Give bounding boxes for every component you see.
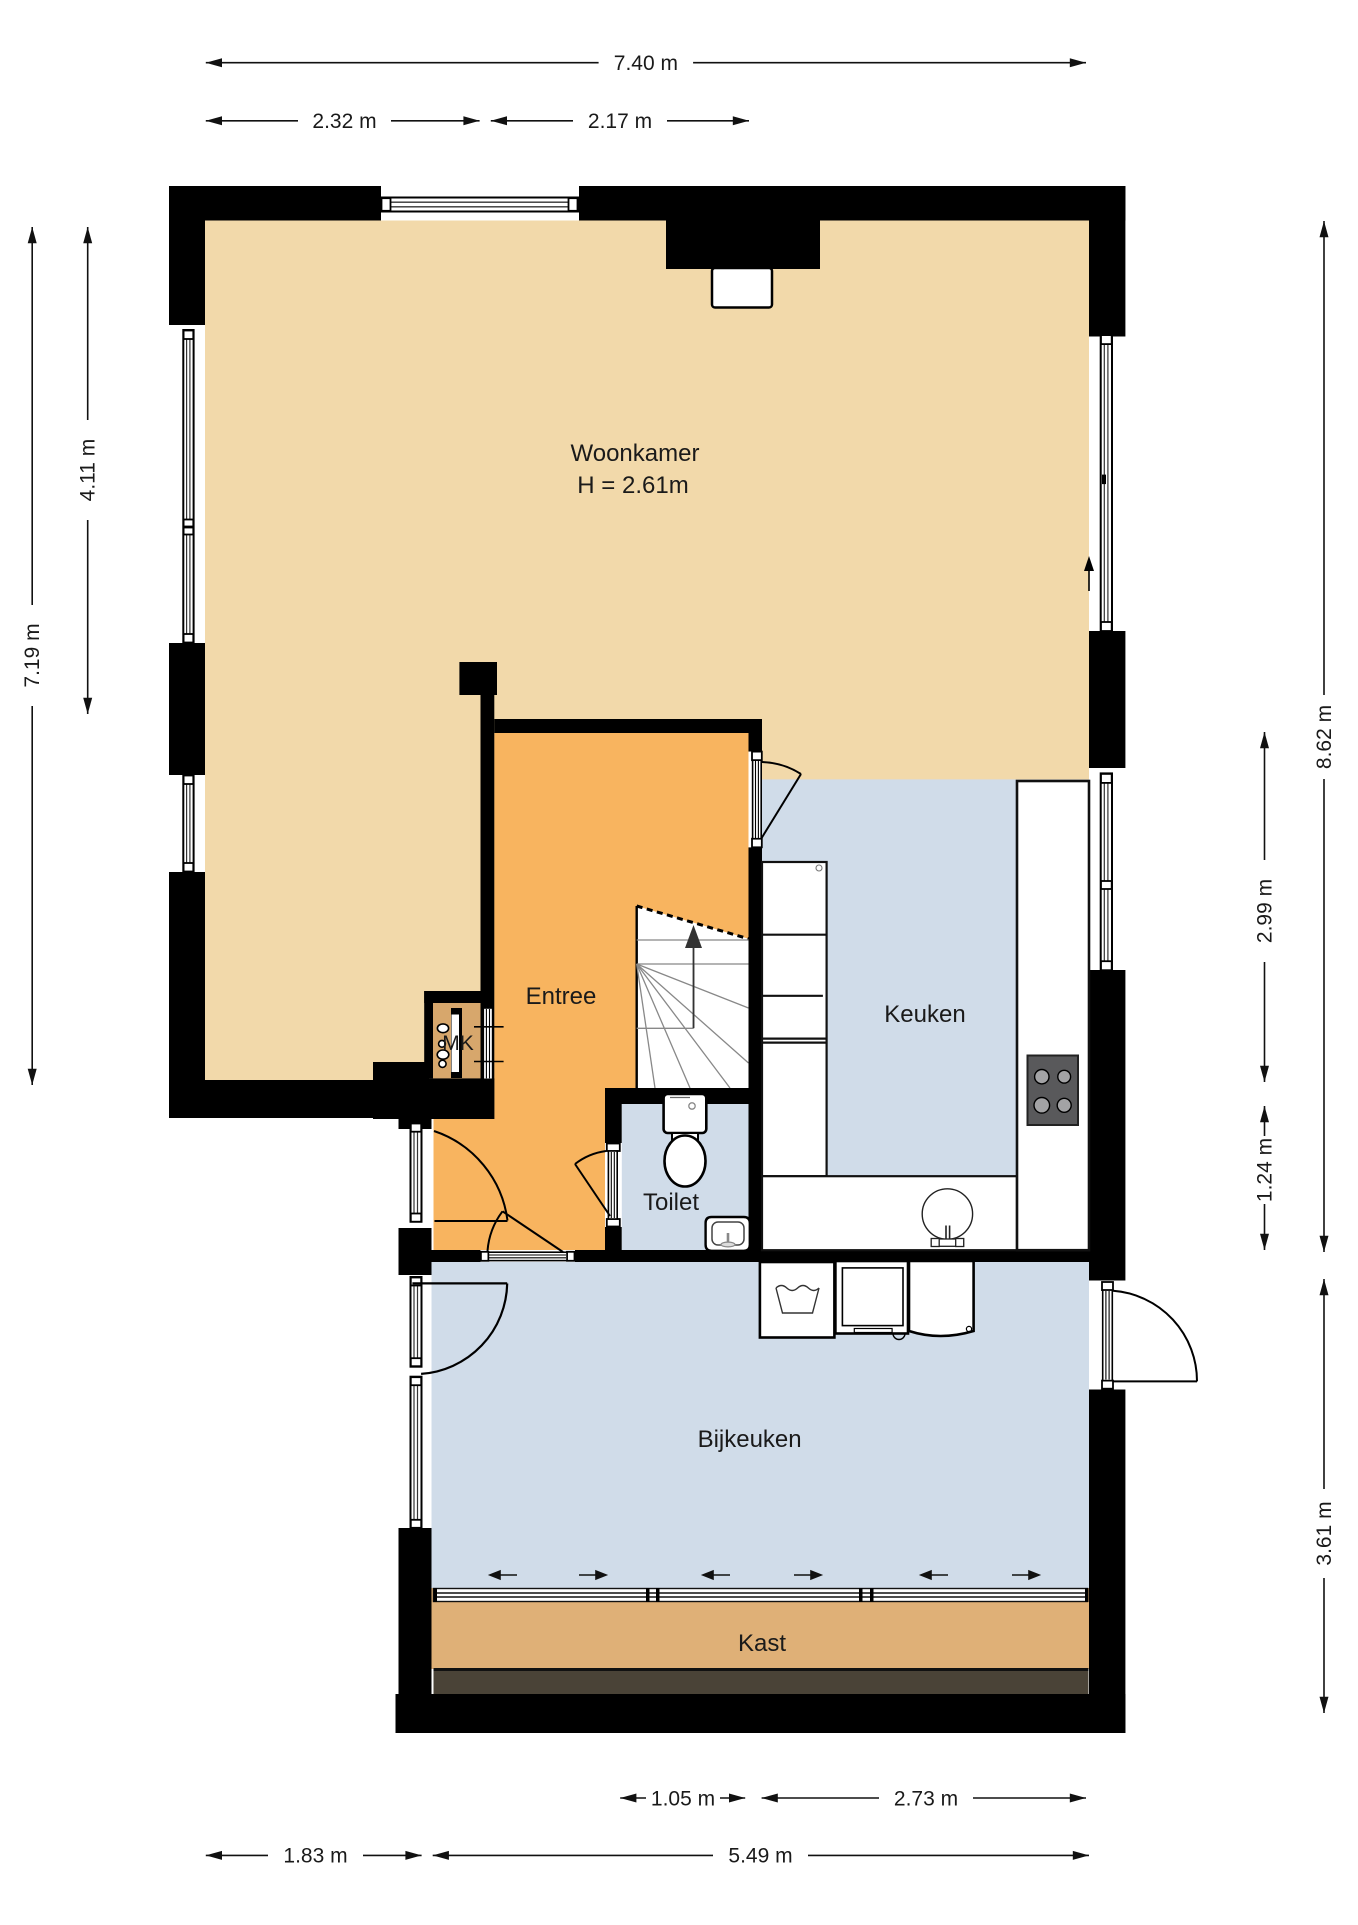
svg-text:1.24 m: 1.24 m <box>1254 1138 1277 1202</box>
svg-text:7.40 m: 7.40 m <box>614 52 678 75</box>
svg-text:2.17 m: 2.17 m <box>588 110 652 133</box>
svg-text:2.99 m: 2.99 m <box>1254 879 1277 943</box>
svg-text:Woonkamer: Woonkamer <box>571 440 700 467</box>
svg-text:4.11 m: 4.11 m <box>77 439 100 502</box>
svg-text:2.32 m: 2.32 m <box>312 110 376 133</box>
svg-text:2.73 m: 2.73 m <box>894 1787 958 1810</box>
svg-text:7.19 m: 7.19 m <box>21 623 44 687</box>
svg-text:H = 2.61m: H = 2.61m <box>577 472 688 499</box>
svg-text:Kast: Kast <box>738 1630 786 1657</box>
svg-text:Keuken: Keuken <box>884 1001 965 1028</box>
svg-text:Bijkeuken: Bijkeuken <box>698 1426 802 1453</box>
svg-text:1.05 m: 1.05 m <box>651 1787 715 1810</box>
svg-text:3.61 m: 3.61 m <box>1313 1501 1336 1565</box>
svg-text:1.83 m: 1.83 m <box>283 1845 347 1868</box>
svg-text:8.62 m: 8.62 m <box>1313 705 1336 769</box>
svg-text:MK: MK <box>442 1032 474 1055</box>
svg-text:Entree: Entree <box>526 983 597 1010</box>
svg-text:5.49 m: 5.49 m <box>728 1845 792 1868</box>
svg-text:Toilet: Toilet <box>643 1189 699 1216</box>
